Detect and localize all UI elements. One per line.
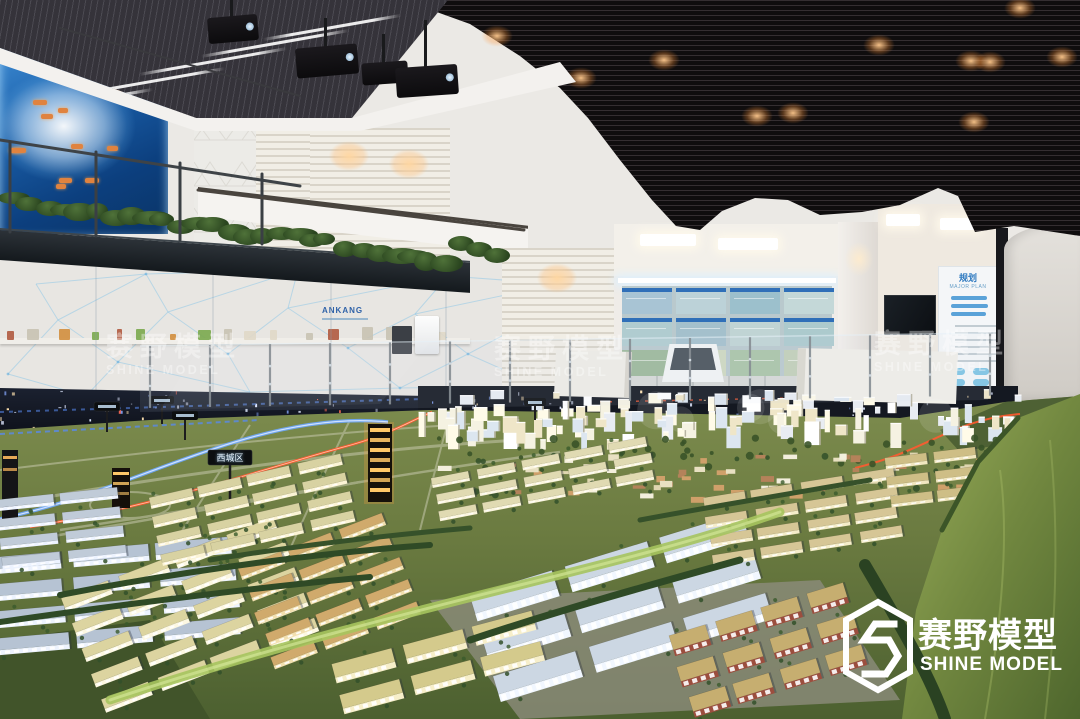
map-panel-line — [788, 298, 828, 299]
info-bar — [951, 296, 987, 300]
glass-seam — [330, 264, 332, 396]
map-panel-header — [676, 318, 726, 322]
downlight-glow — [322, 136, 376, 176]
logo-zh-text: 赛野模型 — [918, 608, 1058, 657]
shelf-exhibit — [306, 333, 313, 340]
map-label-tag — [12, 148, 26, 153]
info-board-title: 规划 — [939, 271, 997, 284]
map-panel — [784, 318, 834, 346]
info-board-subtitle: MAJOR PLAN — [939, 284, 997, 290]
map-panel — [784, 350, 834, 376]
linear-light — [263, 14, 401, 41]
ceiling-projector — [395, 64, 459, 98]
map-panel-line — [788, 360, 828, 361]
air-purifier-unit — [415, 316, 439, 354]
info-line — [955, 325, 997, 327]
map-panel-line — [626, 298, 666, 299]
info-pill — [973, 379, 989, 386]
logo-en-text: SHINE MODEL — [920, 654, 1063, 676]
shelf-exhibit — [7, 331, 14, 340]
shelf-exhibit — [27, 329, 38, 340]
map-label-tag — [85, 178, 98, 183]
planning-display-alcove — [614, 224, 840, 398]
map-panel-header — [730, 288, 780, 292]
map-panel-line — [680, 328, 720, 329]
ceiling-light-panel — [886, 214, 920, 226]
spotlight-glow — [857, 30, 901, 60]
spotlight-glow — [968, 47, 1012, 77]
map-panel-header — [784, 288, 834, 292]
showroom-photo: ANKANG — [0, 0, 1080, 719]
column-uplight-glow — [840, 236, 878, 282]
ceiling-light-panel — [718, 238, 778, 250]
spotlight-glow — [1040, 42, 1080, 72]
info-bar — [951, 304, 988, 308]
plant — [430, 255, 464, 272]
spotlight-glow — [771, 98, 815, 128]
map-panel-line — [680, 298, 720, 299]
map-panel-line — [788, 328, 828, 329]
map-panel-header — [622, 318, 672, 322]
map-label-tag — [59, 178, 73, 183]
shelf-exhibit — [362, 327, 373, 340]
map-panel-header — [730, 318, 780, 322]
watermark: 赛野模型 SHINE MODEL — [494, 336, 630, 379]
map-label-tag — [58, 108, 68, 113]
spotlight-glow — [642, 45, 686, 75]
projector-mount — [424, 20, 427, 68]
spotlight-glow — [952, 107, 996, 137]
map-panel — [730, 350, 780, 376]
info-pill — [949, 379, 965, 386]
wall-wash-light — [618, 278, 836, 283]
watermark-en: SHINE MODEL — [106, 364, 242, 377]
map-label-tag — [107, 146, 118, 151]
plant — [484, 248, 510, 263]
info-bar — [951, 312, 986, 316]
watermark-zh: 赛野模型 — [494, 336, 630, 363]
logo-hexagon-icon — [842, 598, 914, 694]
ceiling-light-panel — [640, 234, 696, 246]
watermark-en: SHINE MODEL — [874, 361, 1010, 374]
watermark: 赛野模型 SHINE MODEL — [106, 334, 242, 377]
wall-subtitle-bar — [322, 318, 368, 320]
map-panel-header — [676, 288, 726, 292]
planning-map-wall — [622, 286, 832, 378]
watermark-zh: 赛野模型 — [106, 334, 242, 361]
map-label-tag — [56, 184, 66, 189]
curved-white-wall — [1004, 224, 1080, 400]
map-panel-line — [626, 328, 666, 329]
led-strip — [622, 390, 832, 394]
map-panel-line — [734, 360, 774, 361]
spotlight-glow — [475, 21, 519, 51]
map-panel-line — [626, 360, 666, 361]
map-label-tag — [33, 100, 46, 105]
map-panel-line — [734, 298, 774, 299]
glass-seam — [95, 264, 97, 396]
shelf-exhibit — [270, 330, 276, 340]
watermark-zh: 赛野模型 — [874, 331, 1010, 358]
kiosk-unit — [392, 326, 412, 354]
watermark: 赛野模型 SHINE MODEL — [874, 331, 1010, 374]
map-panel-header — [784, 318, 834, 322]
map-panel — [730, 318, 780, 346]
shelf-exhibit — [59, 329, 70, 340]
wall-title-text: ANKANG — [322, 306, 363, 315]
downlight-glow — [530, 258, 584, 298]
map-panel — [676, 318, 726, 346]
watermark-en: SHINE MODEL — [494, 366, 630, 379]
ceiling-projector — [295, 43, 359, 78]
projector-mount — [382, 34, 385, 64]
map-label-tag — [71, 144, 83, 149]
ceiling-projector — [207, 14, 259, 44]
downlight-glow — [382, 144, 436, 184]
map-label-tag — [41, 114, 54, 119]
shine-model-logo: 赛野模型 SHINE MODEL — [842, 598, 914, 699]
projector-mount — [324, 18, 327, 48]
alcove-ceiling — [614, 224, 840, 276]
shelf-exhibit — [244, 331, 257, 340]
map-panel-header — [622, 288, 672, 292]
console-table-rim — [670, 348, 716, 370]
map-panel-line — [734, 328, 774, 329]
